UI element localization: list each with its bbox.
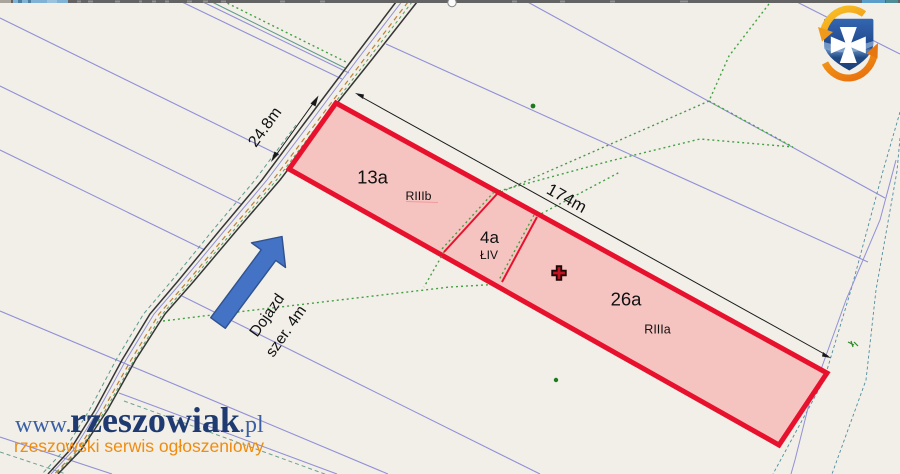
svg-text:4a: 4a (480, 228, 499, 247)
svg-text:RIIIa: RIIIa (644, 323, 670, 337)
svg-text:.pl: .pl (239, 412, 264, 438)
svg-text:rzeszowiak: rzeszowiak (70, 400, 240, 440)
svg-text:26a: 26a (611, 289, 643, 310)
svg-text:RIIIb: RIIIb (406, 189, 432, 203)
svg-text:13a: 13a (357, 167, 389, 188)
svg-text:www.: www. (15, 412, 71, 438)
svg-text:ŁIV: ŁIV (480, 248, 498, 262)
svg-text:rzeszowski serwis ogłoszeniowy: rzeszowski serwis ogłoszeniowy (14, 436, 264, 456)
